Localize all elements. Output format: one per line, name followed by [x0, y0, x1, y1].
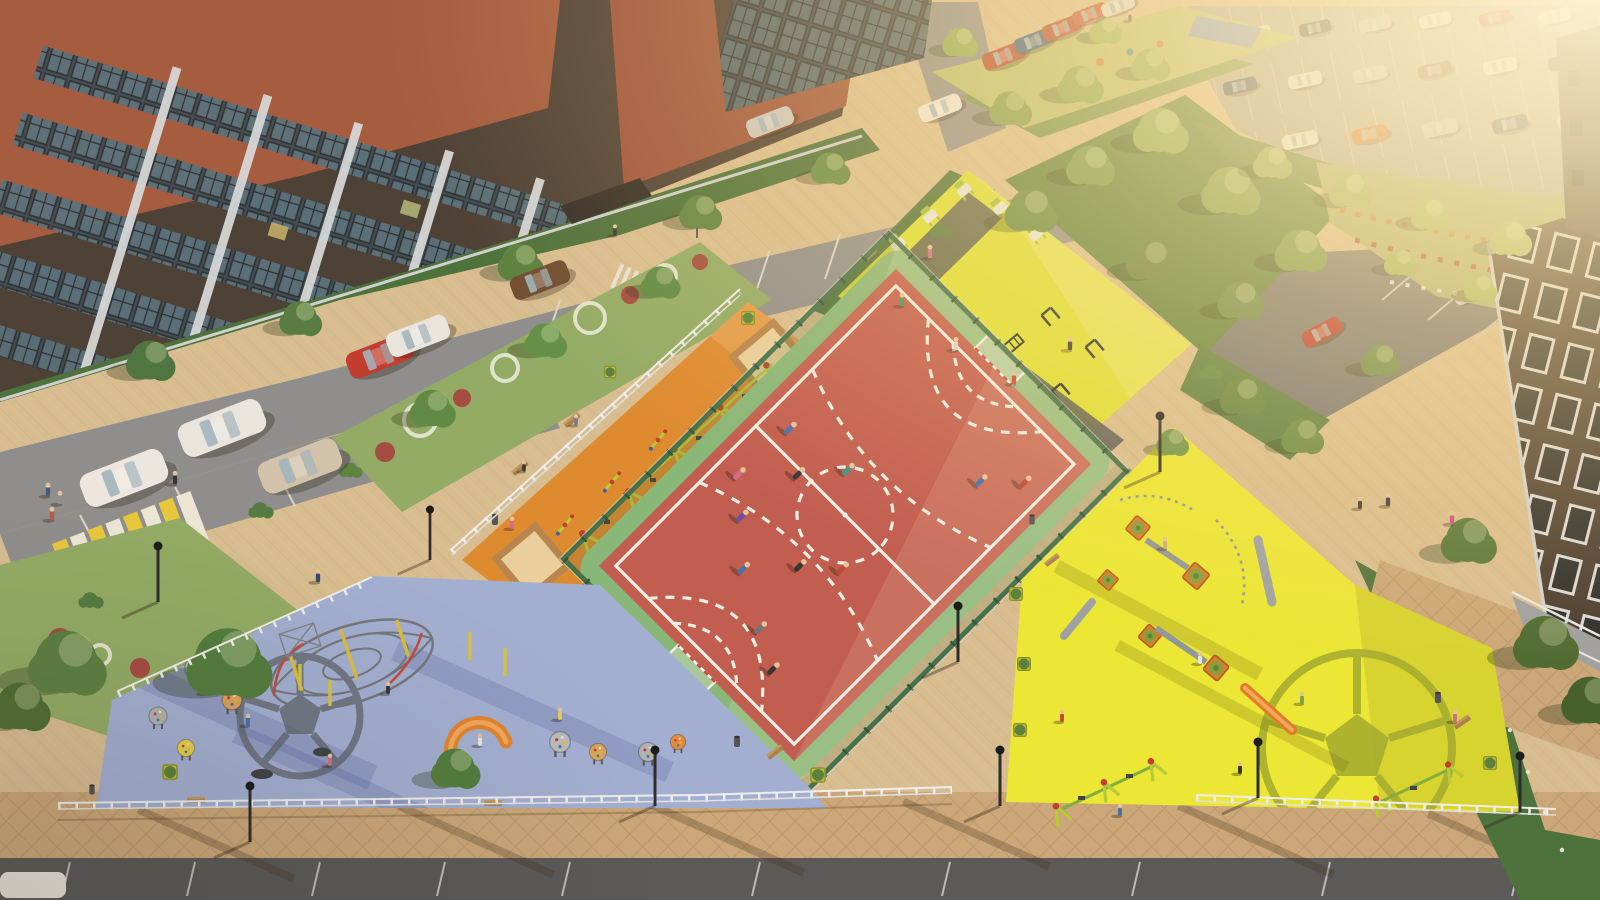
lighting-overlays: [0, 0, 1600, 900]
vignette: [0, 0, 1600, 900]
aerial-courtyard-render: [0, 0, 1600, 900]
render-stage: [0, 0, 1600, 900]
